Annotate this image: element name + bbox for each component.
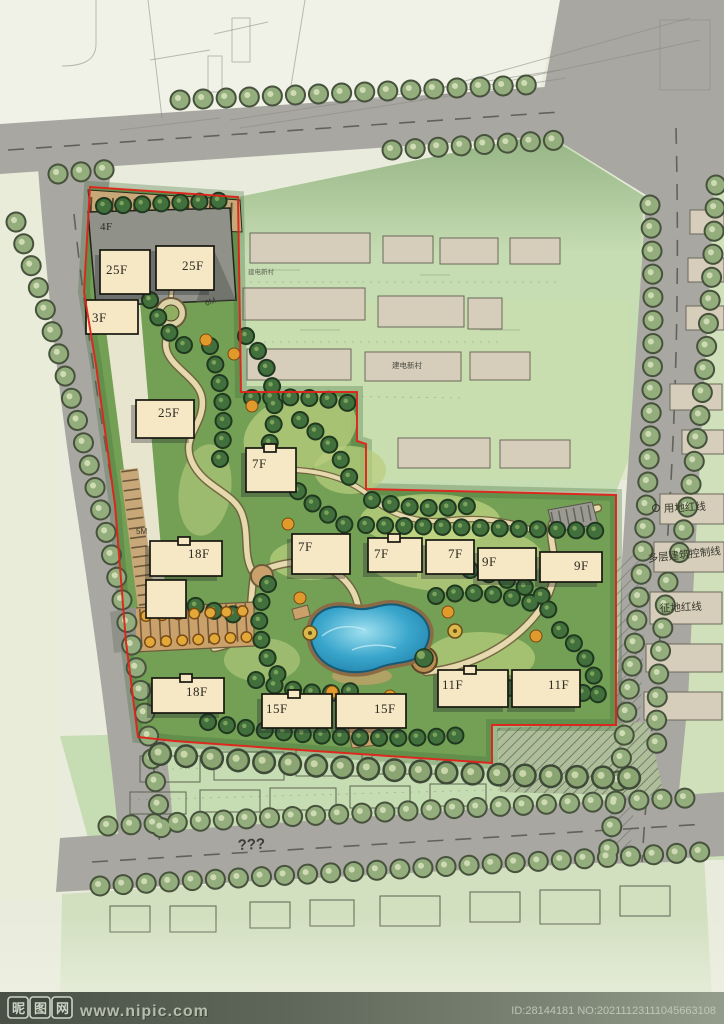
building-label: 11F (442, 677, 463, 692)
building-9f-a: 9F (473, 548, 536, 585)
building-label: 25F (106, 262, 128, 277)
building-label: 7F (448, 546, 463, 561)
building-3f: 3F (86, 300, 138, 334)
watermark-url: www.nipic.com (79, 1003, 209, 1020)
building-25f-c: 25F (131, 400, 194, 443)
village-label-2: 建电新村 (248, 267, 275, 276)
building-label: 7F (374, 546, 389, 561)
nipic-logo: 昵 图 网 (8, 997, 72, 1018)
master-plan-canvas: 25F 25F 4F 3F 25F 7F 18F 7F 7F (0, 0, 724, 1024)
building-label: 15F (266, 701, 288, 716)
building-25f-a: 25F (95, 250, 150, 299)
building-18f-lower: 18F (147, 674, 224, 718)
watermark-id: ID:28144181 NO:20211123111045663108 (511, 1005, 716, 1017)
building-label: 9F (574, 558, 589, 573)
building-label: 15F (374, 701, 396, 716)
watermark-bar: 昵 图 网 www.nipic.com www.nipic.com ID:281… (0, 992, 724, 1024)
logo-char-3: 网 (56, 1001, 69, 1016)
road-name-unknown: ??? (237, 836, 265, 854)
building-15f-b: 15F (331, 694, 406, 733)
building-label: 7F (252, 456, 267, 471)
village-label-1: 建电新村 (392, 360, 422, 370)
building-7f-row-3: 7F (421, 540, 474, 579)
building-7f-row-2: 7F (363, 534, 422, 577)
building-label: 18F (186, 684, 208, 699)
building-label: 11F (548, 677, 569, 692)
building-11f-a: 11F (433, 666, 508, 712)
building-label: 9F (482, 554, 497, 569)
building-label: 25F (182, 258, 204, 273)
building-label: 25F (158, 405, 180, 420)
building-9f-b: 9F (535, 552, 602, 587)
podium-label: 4F (100, 221, 113, 233)
building-label: 3F (92, 310, 107, 325)
building-11f-b: 11F (507, 670, 580, 712)
building-7f-row-1: 7F (287, 534, 350, 579)
site-plan-rendering: 25F 25F 4F 3F 25F 7F 18F 7F 7F (0, 0, 724, 1024)
logo-char-1: 昵 (12, 1001, 25, 1016)
building-label: 18F (188, 546, 210, 561)
building-25f-b: 25F (151, 246, 214, 295)
building-7f-center: 7F (241, 444, 296, 497)
building-label: 7F (298, 539, 313, 554)
road-width-label-5m: 5M (136, 527, 147, 536)
building-15f-a: 15F (257, 690, 332, 733)
logo-char-2: 图 (34, 1001, 47, 1016)
